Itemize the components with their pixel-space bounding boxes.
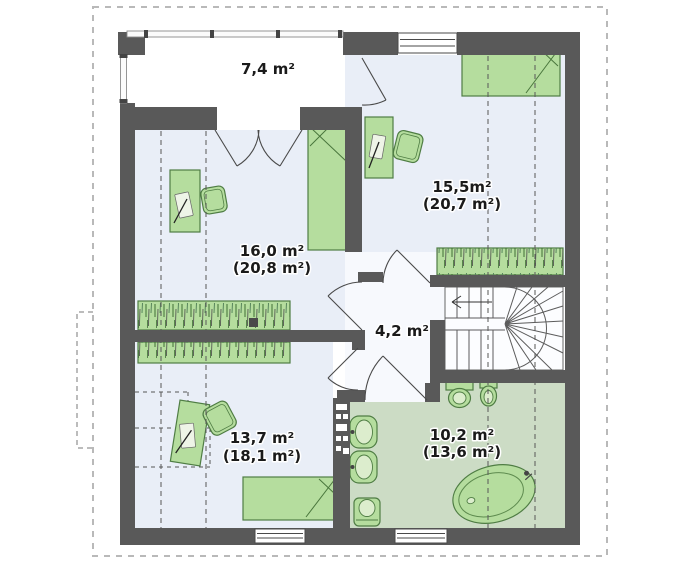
bedroom-right-area-sub: (20,7 m²)	[423, 195, 501, 213]
bathroom-area-sub: (13,6 m²)	[423, 443, 501, 461]
floor-plan: 7,4 m² 15,5m² (20,7 m²) 16,0 m² (20,8 m²…	[0, 0, 700, 575]
chimney-outline	[77, 312, 93, 448]
wardrobe-icon	[437, 248, 563, 275]
bathroom-area-label: 10,2 m²	[430, 426, 494, 444]
sink-icon	[350, 416, 377, 448]
bedroom-right-area-label: 15,5m²	[432, 178, 491, 196]
toilet-icon	[354, 498, 380, 526]
window	[398, 33, 457, 53]
window	[255, 529, 305, 543]
hall-area-label: 4,2 m²	[375, 322, 429, 340]
terrace-area-label: 7,4 m²	[241, 60, 295, 78]
desk-icon	[170, 170, 200, 232]
bedroom-bottom-area-sub: (18,1 m²)	[223, 447, 301, 465]
sink-icon	[350, 451, 377, 483]
bedroom-left-area-sub: (20,8 m²)	[233, 259, 311, 277]
bed-icon	[308, 124, 348, 250]
terrace-floor	[127, 36, 343, 107]
bedroom-bottom-area-label: 13,7 m²	[230, 429, 294, 447]
chair-icon	[200, 185, 228, 215]
desk-icon	[365, 117, 393, 178]
bed-icon	[243, 477, 337, 520]
floor-plan-drawing: 7,4 m² 15,5m² (20,7 m²) 16,0 m² (20,8 m²…	[0, 0, 700, 575]
bed-icon	[462, 48, 560, 96]
window	[395, 529, 447, 543]
stairs-floor	[445, 287, 563, 370]
bedroom-left-area-label: 16,0 m²	[240, 242, 304, 260]
toilet-icon	[446, 382, 473, 408]
